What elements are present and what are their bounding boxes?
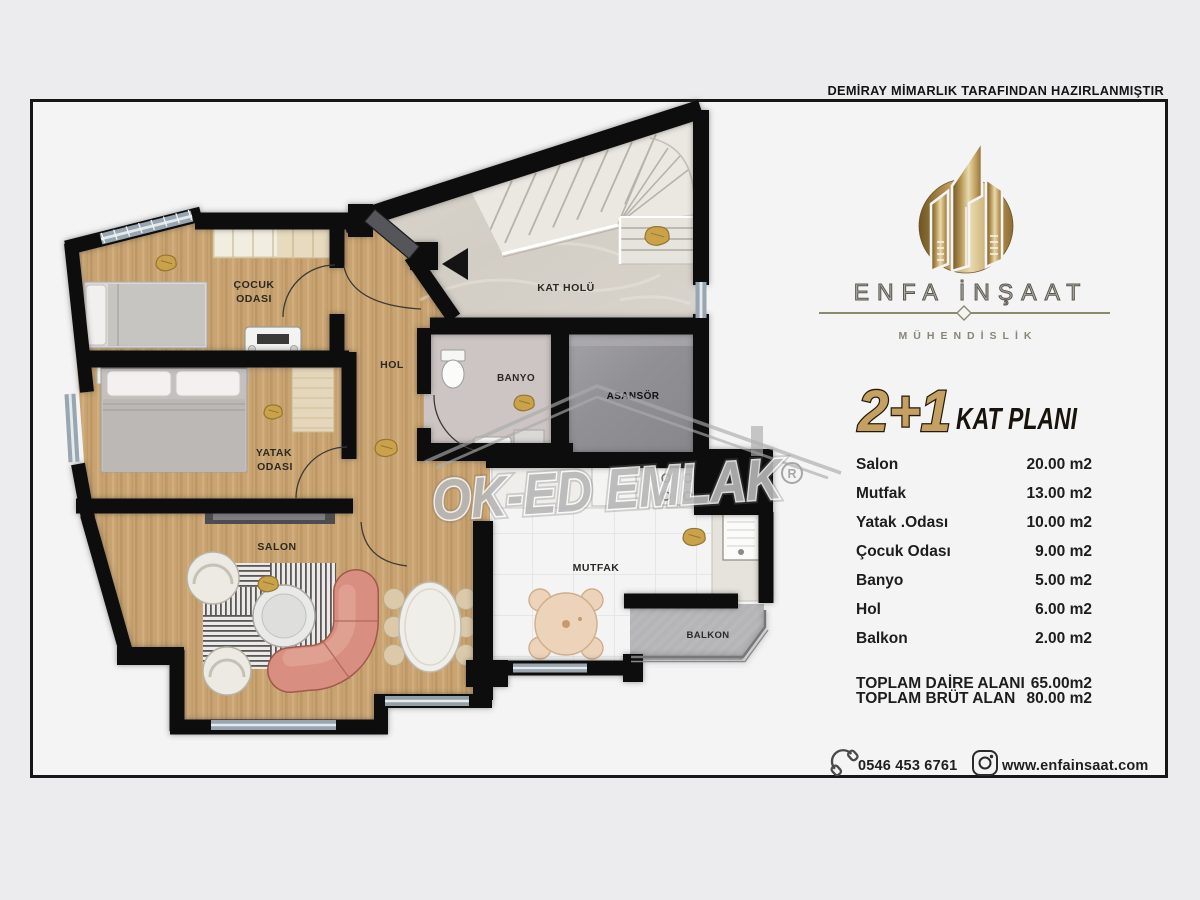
svg-text:Salon: Salon <box>856 456 898 473</box>
svg-text:R: R <box>787 467 796 481</box>
svg-text:ODASI: ODASI <box>236 293 272 305</box>
svg-text:ENFA İNŞAAT: ENFA İNŞAAT <box>854 279 1089 305</box>
svg-text:HOL: HOL <box>380 359 404 371</box>
svg-text:KAT PLANI: KAT PLANI <box>956 401 1078 436</box>
svg-text:Yatak .Odası: Yatak .Odası <box>856 514 948 531</box>
svg-text:TOPLAM BRÜT ALAN: TOPLAM BRÜT ALAN <box>856 690 1015 707</box>
svg-text:80.00 m2: 80.00 m2 <box>1027 690 1093 707</box>
svg-text:20.00 m2: 20.00 m2 <box>1027 456 1093 473</box>
svg-text:9.00 m2: 9.00 m2 <box>1035 543 1092 560</box>
svg-text:10.00 m2: 10.00 m2 <box>1027 514 1093 531</box>
svg-text:www.enfainsaat.com: www.enfainsaat.com <box>1001 758 1149 774</box>
svg-text:KAT HOLÜ: KAT HOLÜ <box>537 281 594 294</box>
svg-text:Mutfak: Mutfak <box>856 485 906 502</box>
svg-text:Çocuk Odası: Çocuk Odası <box>856 543 951 560</box>
svg-text:Hol: Hol <box>856 601 881 618</box>
svg-text:DEMİRAY MİMARLIK TARAFINDAN HA: DEMİRAY MİMARLIK TARAFINDAN HAZIRLANMIŞT… <box>827 83 1164 98</box>
svg-text:2+1: 2+1 <box>857 379 951 444</box>
svg-text:0546 453 6761: 0546 453 6761 <box>858 758 957 774</box>
svg-text:2.00 m2: 2.00 m2 <box>1035 630 1092 647</box>
svg-text:5.00 m2: 5.00 m2 <box>1035 572 1092 589</box>
svg-text:Banyo: Banyo <box>856 572 903 589</box>
svg-text:BANYO: BANYO <box>497 373 535 384</box>
svg-text:ÇOCUK: ÇOCUK <box>234 279 275 291</box>
svg-text:MÜHENDİSLİK: MÜHENDİSLİK <box>899 329 1038 342</box>
svg-text:MUTFAK: MUTFAK <box>573 562 620 574</box>
svg-text:Balkon: Balkon <box>856 630 908 647</box>
svg-text:ODASI: ODASI <box>257 461 293 473</box>
svg-text:6.00 m2: 6.00 m2 <box>1035 601 1092 618</box>
svg-text:13.00 m2: 13.00 m2 <box>1027 485 1093 502</box>
svg-text:YATAK: YATAK <box>256 447 292 459</box>
svg-text:SALON: SALON <box>257 541 296 553</box>
svg-text:BALKON: BALKON <box>686 630 729 641</box>
